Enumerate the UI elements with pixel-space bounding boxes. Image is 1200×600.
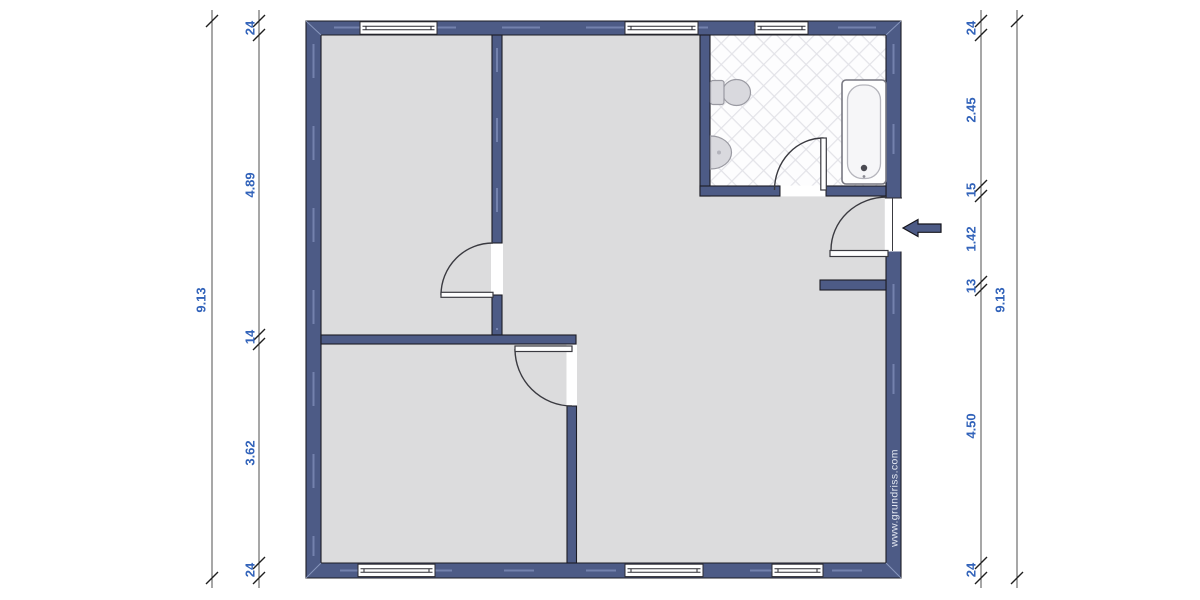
- dim-left-total: 9.13: [194, 287, 209, 312]
- dim-left-room-lower: 3.62: [243, 440, 258, 465]
- door-opening-room1: [491, 244, 503, 295]
- dim-right-wall-bottom: 24: [964, 562, 979, 577]
- dim-right-wall-stub: 13: [964, 279, 979, 293]
- dim-right-wall-top: 24: [964, 20, 979, 35]
- dim-left-room-upper: 4.89: [243, 172, 258, 197]
- door-opening-room2: [567, 345, 578, 406]
- dim-left-wall-mid: 14: [243, 329, 258, 344]
- window: [625, 22, 698, 34]
- interior-wall-horizontal: [321, 335, 576, 344]
- bathroom-wall-bottom-right: [826, 186, 886, 196]
- dim-left-wall-top: 24: [243, 20, 258, 35]
- bathroom-wall-bottom-left: [700, 186, 780, 196]
- window: [625, 564, 703, 576]
- dim-right-wall-bath: 15: [964, 183, 979, 197]
- dim-right-total: 9.13: [993, 287, 1008, 312]
- entrance-opening: [885, 198, 902, 252]
- bathtub-icon: [842, 80, 886, 184]
- dim-right-entrance: 1.42: [964, 226, 979, 251]
- dim-right-bathroom: 2.45: [964, 97, 979, 122]
- dim-left-wall-bottom: 24: [243, 562, 258, 577]
- watermark-text: www.grundriss.com: [889, 449, 901, 548]
- window: [358, 564, 435, 576]
- interior-wall-vertical-lower: [567, 406, 577, 563]
- floor-plan-canvas: 9.13 24 4.89 14 3.62 24 24 2.45 15 1.42 …: [0, 0, 1200, 600]
- entrance-arrow-icon: [903, 220, 941, 237]
- toilet-icon: [711, 80, 751, 106]
- door-opening-bathroom: [781, 186, 826, 197]
- window: [360, 22, 437, 34]
- window: [755, 22, 808, 34]
- dim-right-room-lower: 4.50: [964, 413, 979, 438]
- hall-wall-stub: [820, 280, 886, 290]
- floor-plan: 9.13 24 4.89 14 3.62 24 24 2.45 15 1.42 …: [0, 0, 1200, 600]
- window: [772, 564, 823, 576]
- bathroom-wall-left: [700, 35, 710, 196]
